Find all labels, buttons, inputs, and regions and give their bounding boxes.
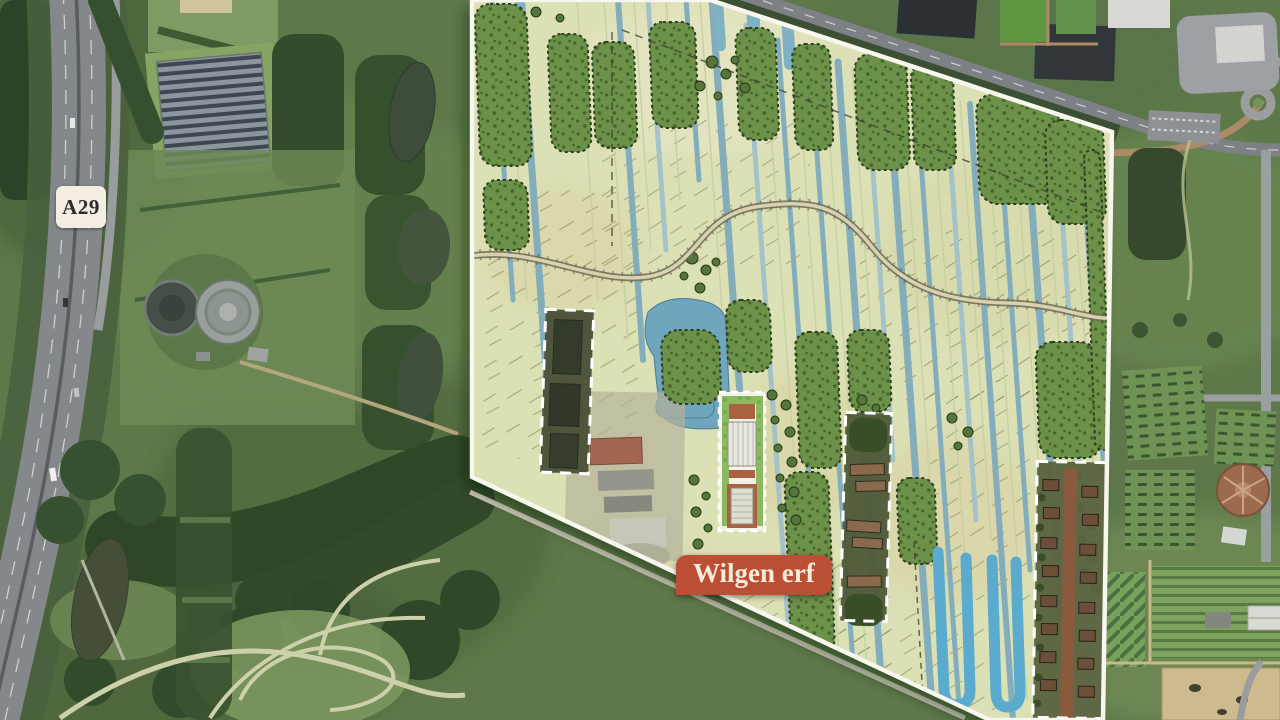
area-label-wilgen-erf[interactable]: Wilgen erf: [676, 555, 832, 595]
map-canvas: [0, 0, 1280, 720]
field-strip-tan: [180, 0, 232, 13]
parking-lot: [1147, 110, 1220, 144]
hedge-block: [1128, 148, 1186, 260]
farm-shed: [1205, 612, 1231, 628]
aerial-masterplan-view: A29 Wilgen erf: [0, 0, 1280, 720]
lawn-1: [1000, 0, 1048, 42]
office-building-1: [897, 0, 978, 39]
development-area-4: [1033, 461, 1108, 720]
radial-plaza: [1217, 464, 1269, 516]
garden-plots-1: [1122, 365, 1208, 460]
farm-red-roof: [590, 437, 643, 465]
garden-plots-3: [1214, 408, 1277, 466]
white-building: [1108, 0, 1170, 28]
development-area-3: [840, 412, 892, 626]
lawn-2: [1056, 0, 1096, 34]
featured-area-wilgen-erf[interactable]: [719, 392, 765, 531]
hedgerow-column: [176, 428, 232, 720]
road-sign-a29: A29: [56, 186, 106, 228]
garden-plots-2: [1125, 470, 1195, 550]
development-area-1: [540, 309, 594, 474]
